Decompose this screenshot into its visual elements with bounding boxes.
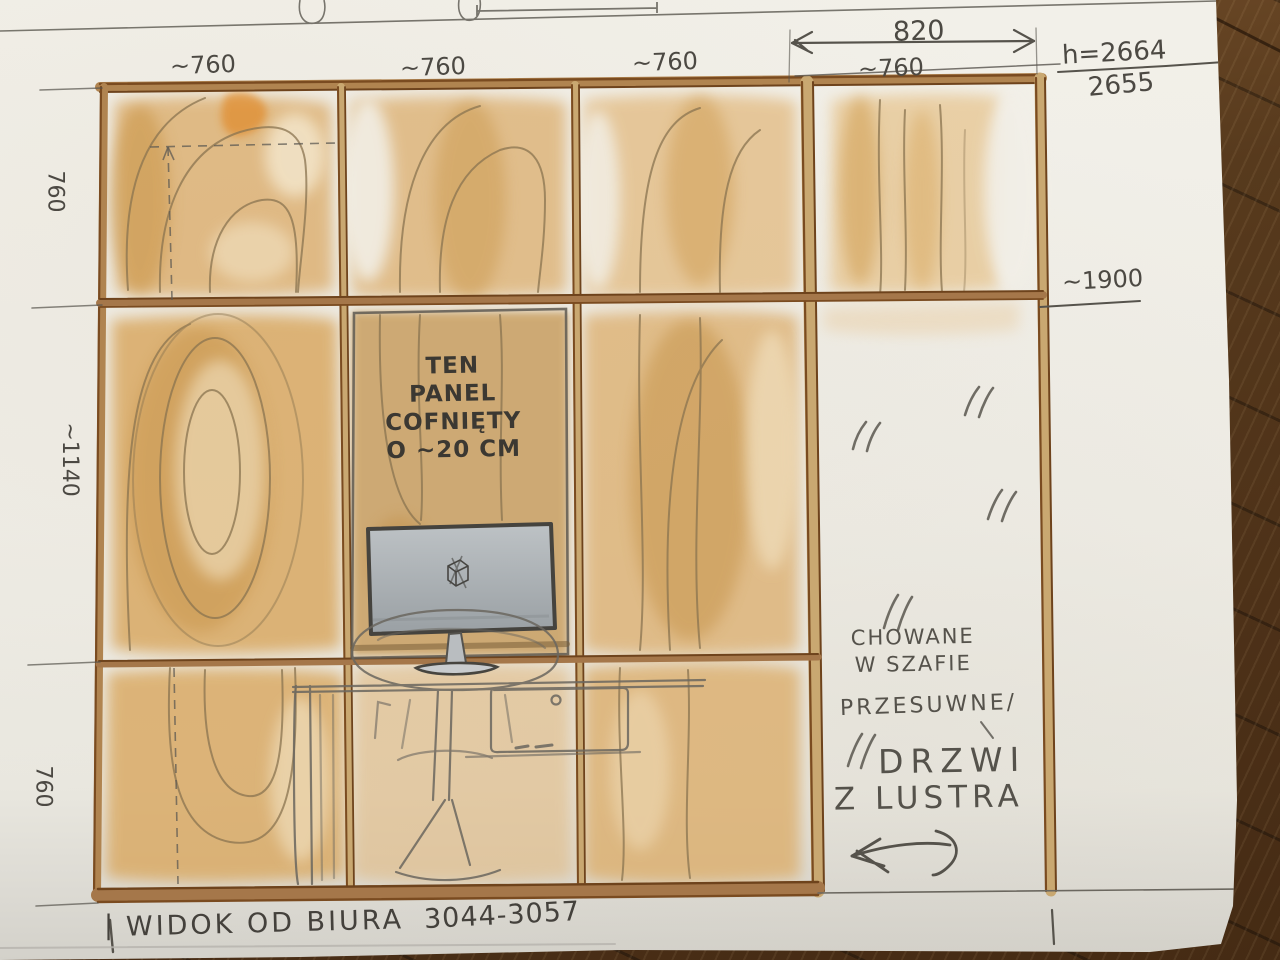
note-recessed-panel: TEN PANEL COFNIĘTY O ~20 CM <box>377 351 529 466</box>
note-recessed-panel-line3: COFNIĘTY <box>378 407 528 438</box>
sketch-drawing <box>0 0 1280 960</box>
dim-label-1900: ~1900 <box>1061 266 1143 295</box>
dim-label-top-1: ~760 <box>170 52 237 79</box>
height-label-primary: h=2664 <box>1061 37 1167 70</box>
note-recessed-panel-line4: O ~20 CM <box>379 435 529 466</box>
height-label-secondary: 2655 <box>1087 69 1155 102</box>
watercolor-wash-column2 <box>342 97 572 884</box>
watercolor-wash-column1 <box>106 92 345 882</box>
note-mirror-doors-line2: Z LUSTRA <box>834 780 1024 816</box>
top-sheet-remnant-sketch <box>0 0 1216 31</box>
note-recessed-panel-line1: TEN <box>377 351 527 382</box>
note-sliding: PRZESUWNE/ <box>840 691 1018 720</box>
dim-label-820: 820 <box>893 17 946 47</box>
note-hidden-in-wardrobe: CHOWANE W SZAFIE <box>838 623 989 680</box>
dim-label-top-4: ~760 <box>858 55 925 82</box>
dim-label-top-3: ~760 <box>632 49 699 76</box>
dim-label-left-middle: ~1140 <box>58 422 81 496</box>
note-mirror-doors-line1: DRZWI <box>878 743 1027 780</box>
note-recessed-panel-line2: PANEL <box>378 379 528 410</box>
note-hidden-line1: CHOWANE <box>838 623 988 653</box>
note-hidden-line2: W SZAFIE <box>838 650 988 680</box>
dim-label-left-top: 760 <box>43 171 66 213</box>
dim-label-left-bottom: 760 <box>31 766 54 808</box>
photo-of-wardrobe-sketch: ~760 ~760 ~760 ~760 820 h=2664 2655 ~190… <box>0 0 1280 960</box>
footer-tick-left: | <box>104 912 113 940</box>
sketch-paper: ~760 ~760 ~760 ~760 820 h=2664 2655 ~190… <box>0 0 1280 960</box>
dim-label-top-2: ~760 <box>400 54 467 81</box>
slide-direction-arrow <box>852 831 956 875</box>
